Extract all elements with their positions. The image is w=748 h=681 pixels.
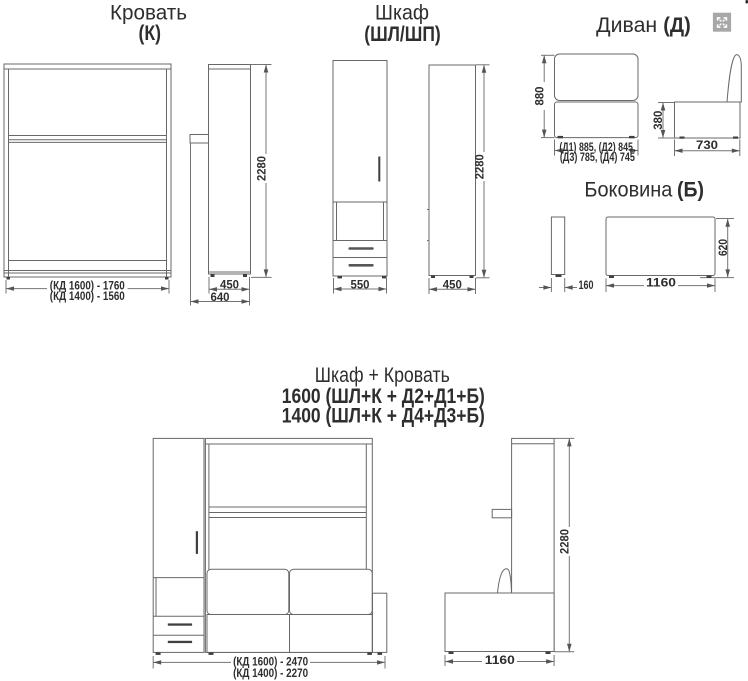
svg-text:Шкаф: Шкаф (375, 1, 429, 24)
svg-text:450: 450 (220, 279, 239, 291)
svg-text:640: 640 (211, 292, 230, 304)
svg-text:550: 550 (351, 279, 370, 291)
svg-text:Шкаф + Кровать: Шкаф + Кровать (315, 364, 450, 387)
svg-text:(КД 1600) - 2470: (КД 1600) - 2470 (233, 656, 308, 668)
svg-text:730: 730 (696, 140, 718, 152)
svg-text:(Б): (Б) (677, 179, 704, 202)
svg-text:2280: 2280 (474, 154, 486, 179)
svg-text:(КД 1400) - 2270: (КД 1400) - 2270 (233, 668, 308, 680)
svg-text:2280: 2280 (560, 529, 572, 554)
svg-text:(К): (К) (139, 22, 162, 45)
svg-text:620: 620 (718, 239, 730, 256)
svg-text:(КД 1400) - 1560: (КД 1400) - 1560 (50, 291, 125, 303)
svg-text:(ШЛ/ШП): (ШЛ/ШП) (364, 23, 441, 46)
svg-text:(Д): (Д) (663, 14, 691, 37)
svg-text:160: 160 (579, 280, 594, 292)
svg-text:(Д3) 785, (Д4) 745: (Д3) 785, (Д4) 745 (560, 152, 635, 164)
svg-text:Боковина: Боковина (584, 179, 672, 202)
svg-text:450: 450 (443, 279, 462, 291)
svg-text:880: 880 (534, 87, 546, 106)
svg-text:Диван: Диван (596, 14, 657, 37)
svg-text:Кровать: Кровать (110, 1, 187, 24)
svg-text:380: 380 (653, 111, 665, 130)
svg-text:1400 (ШЛ+К + Д4+Д3+Б): 1400 (ШЛ+К + Д4+Д3+Б) (282, 405, 485, 428)
svg-text:2280: 2280 (256, 156, 268, 181)
svg-text:1160: 1160 (646, 278, 676, 290)
svg-text:1160: 1160 (485, 655, 515, 667)
